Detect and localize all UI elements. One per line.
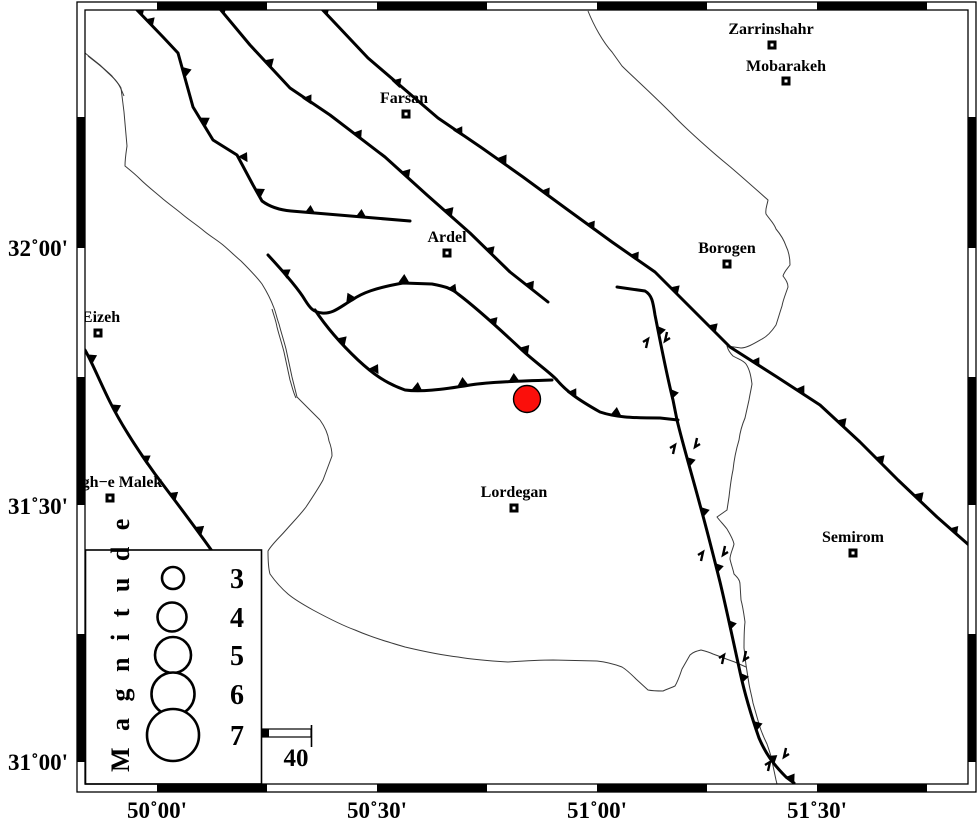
frame-segment [157,2,267,10]
frame-segment [77,117,85,248]
longitude-tick-label: 51˚30' [787,798,847,823]
city-marker [768,41,777,50]
frame-segment [817,2,927,10]
frame-segment [157,784,267,792]
longitude-tick-label: 51˚00' [567,798,627,823]
city-label: Farsan [380,90,428,107]
city-label: Semirom [822,529,885,546]
city-marker [106,494,115,503]
scale-label: 40 [284,745,309,772]
latitude-tick-label: 31˚30' [8,494,68,519]
epicenter-marker [514,386,541,413]
legend-title: M a g n i t u d e [106,514,135,772]
legend-value: 7 [230,721,244,752]
frame-segment [377,2,487,10]
city-marker [849,549,858,558]
latitude-tick-label: 31˚00' [8,750,68,775]
frame-segment [597,2,707,10]
frame-segment [377,784,487,792]
city-label: Eizeh [82,309,120,326]
longitude-tick-label: 50˚00' [127,798,187,823]
city-marker [443,249,452,258]
city-label: Borogen [698,240,756,257]
frame-segment [968,117,976,248]
frame-segment [597,784,707,792]
frame-segment [968,377,976,505]
city-marker [402,110,411,119]
frame-segment [77,377,85,505]
city-marker [510,504,519,513]
city-label: gh−e Malek [82,474,163,491]
legend-circle-mag5 [155,637,191,673]
legend-circle-mag4 [158,603,187,632]
legend-value: 5 [230,641,244,672]
magnitude-legend: M a g n i t u d e 3 4 5 6 7 [86,514,262,784]
scale-bar-cap [262,729,269,737]
city-label: Lordegan [481,484,548,501]
city-label: Mobarakeh [746,58,826,75]
latitude-tick-label: 32˚00' [8,236,68,261]
city-label: Zarrinshahr [728,21,813,38]
legend-value: 4 [230,603,244,634]
legend-value: 3 [230,564,244,595]
map-figure: Zarrinshahr Mobarakeh Farsan Ardel Borog… [0,0,978,824]
city-marker [94,329,103,338]
legend-circle-mag7 [147,709,199,761]
frame-segment [968,634,976,762]
frame-segment [77,634,85,762]
longitude-tick-label: 50˚30' [347,798,407,823]
city-marker [782,77,791,86]
city-marker [723,260,732,269]
legend-value: 6 [230,680,244,711]
seismotectonic-map: Zarrinshahr Mobarakeh Farsan Ardel Borog… [0,0,978,824]
city-label: Ardel [427,229,467,246]
scale-bar-body [262,729,311,737]
legend-circle-mag3 [162,567,184,589]
frame-segment [817,784,927,792]
